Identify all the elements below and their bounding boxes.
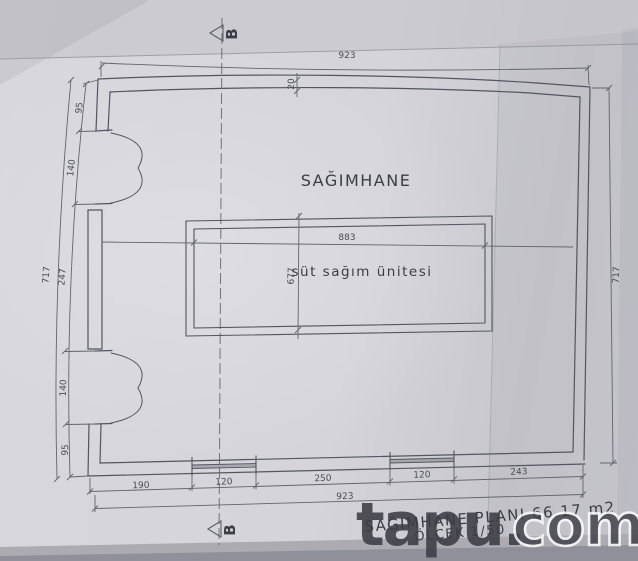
dim-right-total: 717: [612, 266, 623, 284]
dim-left-seg-140-bottom: 140: [59, 379, 70, 397]
tapu-watermark: tapu. com: [356, 490, 638, 560]
scanned-floor-plan-photo: B B: [0, 0, 638, 561]
dim-bottom-seg-243: 243: [510, 467, 528, 478]
section-letter-bottom: B: [221, 524, 239, 535]
watermark-outline: com: [512, 491, 638, 559]
dim-left-seg-95-top: 95: [74, 102, 85, 115]
dim-unit-width: 883: [338, 233, 355, 243]
dim-bottom-seg-190: 190: [132, 481, 150, 492]
section-letter-top: B: [223, 28, 241, 39]
dim-left-total: 717: [41, 266, 52, 284]
dim-wall-thickness: 20: [287, 78, 297, 90]
watermark-solid: tapu.: [356, 490, 524, 560]
dim-bottom-seg-250: 250: [314, 474, 332, 485]
unit-label: süt sağım ünitesi: [292, 264, 433, 280]
room-label: SAĞIMHANE: [301, 171, 412, 190]
floor-plan-drawing: B B: [0, 0, 638, 561]
dim-top-width: 923: [338, 51, 355, 61]
dim-left-seg-95-bottom: 95: [61, 444, 71, 456]
dim-bottom-width: 923: [336, 492, 354, 503]
dim-bottom-seg-120a: 120: [215, 477, 233, 488]
dim-left-seg-247: 247: [57, 268, 68, 286]
dim-left-seg-140-top: 140: [66, 159, 78, 178]
dim-bottom-seg-120b: 120: [413, 470, 431, 481]
